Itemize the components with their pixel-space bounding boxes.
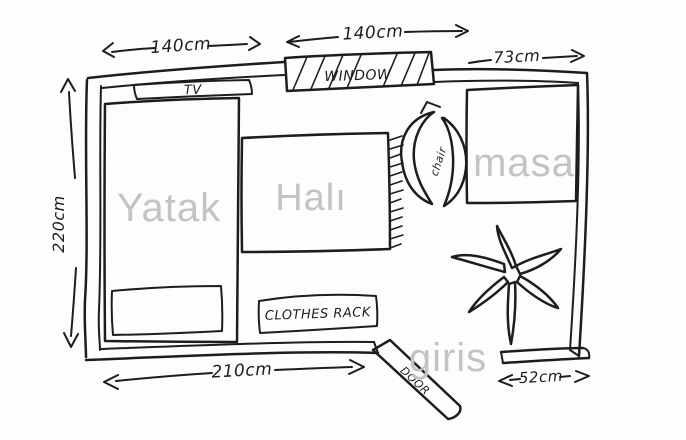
floor-plan-canvas: WINDOW TV Yatak Halı chair masa CLOTHES … xyxy=(0,0,686,440)
plant-leaves xyxy=(452,226,561,344)
bed-label: Yatak xyxy=(117,186,221,230)
carpet-label: Halı xyxy=(275,177,347,219)
wall-top-right-inner xyxy=(434,81,578,83)
chair: chair xyxy=(401,102,466,206)
dimension-left-wall: 220cm xyxy=(49,195,68,252)
bed: TV Yatak xyxy=(105,80,253,342)
window-label: WINDOW xyxy=(324,67,392,85)
measurement-top-right: 73cm xyxy=(469,46,584,67)
entrance-label: giris xyxy=(409,336,487,380)
wall-bottom-outer xyxy=(86,352,378,360)
tv-label: TV xyxy=(184,83,203,99)
dimension-window: 140cm xyxy=(342,21,404,44)
measurement-bottom-right: 52cm xyxy=(499,367,589,387)
wall-left-inner xyxy=(99,86,101,350)
dimension-bottom-right: 52cm xyxy=(518,367,563,387)
table-label: masa xyxy=(473,141,575,185)
wall-right-bottom-cap xyxy=(570,350,579,356)
wall-left-outer xyxy=(85,80,87,357)
carpet: Halı xyxy=(242,133,404,252)
wall-top-right-outer xyxy=(434,69,587,73)
chair-seat xyxy=(442,118,466,206)
wall-bottom-right-bottom xyxy=(503,358,589,363)
table: masa xyxy=(467,85,579,203)
plant xyxy=(452,226,561,344)
measurement-bottom: 210cm xyxy=(104,359,364,389)
chair-back-tab xyxy=(421,102,440,113)
dimension-bottom: 210cm xyxy=(211,359,273,382)
measurement-top-left: 140cm xyxy=(103,34,260,58)
measurement-window: 140cm xyxy=(287,21,468,47)
pillow-outline xyxy=(112,286,223,335)
window: WINDOW xyxy=(285,52,434,91)
clothes-rack: CLOTHES RACK xyxy=(259,295,378,333)
clothes-rack-label: CLOTHES RACK xyxy=(265,305,372,324)
wall-right-outer xyxy=(579,73,588,356)
chair-label: chair xyxy=(428,144,450,177)
floor-plan-sheet: WINDOW TV Yatak Halı chair masa CLOTHES … xyxy=(0,0,686,440)
measurement-left: 220cm xyxy=(49,79,78,347)
dimension-top-right: 73cm xyxy=(493,46,541,67)
dimension-top-left: 140cm xyxy=(150,34,212,58)
chair-back xyxy=(401,112,434,204)
